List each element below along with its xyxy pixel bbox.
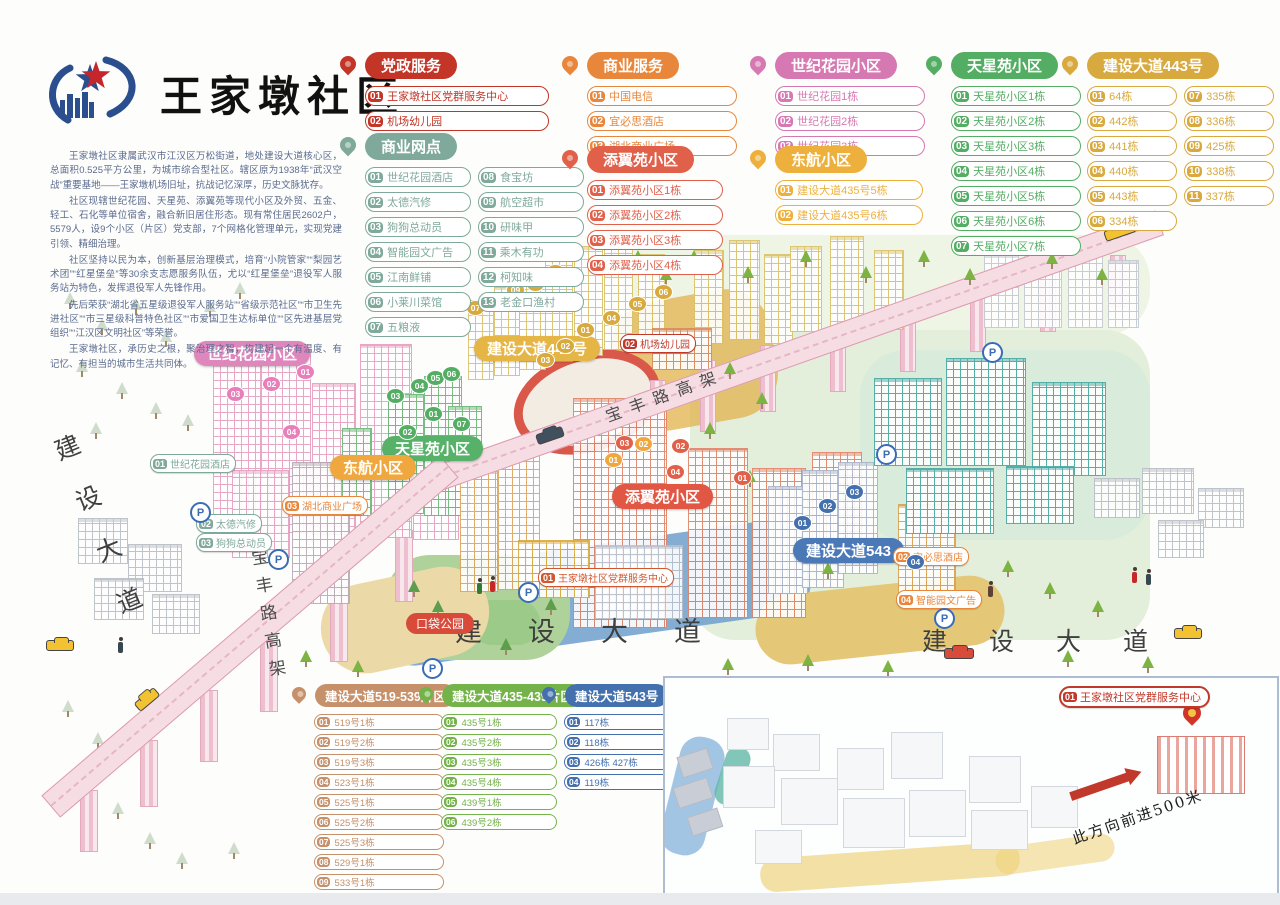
badge-number: 01 [609, 455, 618, 465]
item-number: 05 [1090, 191, 1105, 202]
item-number: 07 [954, 241, 969, 252]
building [460, 470, 498, 592]
poi-number: 03 [285, 501, 299, 511]
item-number: 04 [317, 777, 330, 787]
poi-label: 世纪花园酒店 [170, 456, 230, 471]
district-ribbon: 东航小区 [330, 455, 416, 480]
item-label: 天星苑小区2栋 [973, 113, 1045, 129]
badge-number: 02 [267, 379, 276, 389]
legend-item: 02太德汽修 [365, 192, 471, 212]
badge-number: 06 [447, 369, 456, 379]
badge-number: 01 [429, 409, 438, 419]
parking-letter: P [941, 613, 948, 625]
tree-icon [90, 422, 102, 439]
poi-tag: 03狗狗总动员 [196, 533, 272, 552]
map-pin-icon [747, 146, 770, 169]
building [1032, 382, 1106, 476]
item-number: 09 [1187, 141, 1202, 152]
building-number-badge: 02 [398, 424, 417, 440]
item-label: 442栋 [1109, 113, 1138, 129]
item-number: 06 [368, 297, 383, 308]
person-figure [988, 586, 993, 597]
item-number: 01 [567, 717, 580, 727]
item-label: 533号1栋 [334, 875, 374, 889]
ribbon-label: 添翼苑小区 [625, 489, 700, 506]
intro-paragraph: 王家墩社区隶属武汉市江汉区万松街道，地处建设大道核心区，总面积0.525平方公里… [50, 150, 342, 193]
poi-label: 湖北商业广场 [302, 498, 362, 513]
item-label: 64栋 [1109, 88, 1132, 104]
tree-icon [352, 660, 364, 677]
item-label: 523号1栋 [334, 775, 374, 789]
building [906, 468, 994, 534]
legend-panel-shijihuayuan: 世纪花园小区 01世纪花园1栋02世纪花园2栋03世纪花园3栋 [750, 52, 925, 156]
item-label: 519号1栋 [334, 715, 374, 729]
poi-tag: 03湖北商业广场 [282, 496, 368, 515]
legend-item: 04440栋 [1087, 161, 1177, 181]
legend-item: 08529号1栋 [314, 854, 444, 870]
map-pin-icon [337, 133, 360, 156]
badge-number: 03 [620, 438, 629, 448]
poi-number: 01 [153, 459, 167, 469]
tree-icon [1096, 268, 1108, 285]
tree-icon [300, 650, 312, 667]
item-label: 乘木有功 [500, 244, 544, 260]
tree-icon [112, 802, 124, 819]
poi-label: 太德汽修 [216, 516, 256, 531]
tree-icon [800, 250, 812, 267]
building-number-badge: 01 [424, 406, 443, 422]
tree-icon [150, 402, 162, 419]
item-label: 525号3栋 [334, 835, 374, 849]
building [729, 240, 760, 340]
legend-item: 01添翼苑小区1栋 [587, 180, 723, 200]
legend-items: 01世纪花园酒店02太德汽修03狗狗总动员04智能园文广告05江南鲜铺06小莱川… [365, 167, 581, 359]
item-label: 老金口渔村 [500, 294, 555, 310]
legend-item: 02建设大道435号6栋 [775, 205, 923, 225]
item-label: 525号2栋 [334, 815, 374, 829]
poi-tag: 01王家墩社区党群服务中心 [538, 568, 674, 587]
legend-title: 建设大道543号 [565, 684, 668, 707]
car-icon [1174, 628, 1202, 639]
parking-letter: P [429, 663, 436, 675]
item-label: 天星苑小区6栋 [973, 213, 1045, 229]
building-number-badge: 06 [442, 366, 461, 382]
person-figure [490, 581, 495, 592]
legend-title: 党政服务 [365, 52, 457, 79]
item-label: 440栋 [1109, 163, 1138, 179]
parking-icon: P [422, 658, 443, 679]
item-number: 02 [954, 116, 969, 127]
item-number: 11 [481, 247, 496, 258]
item-number: 04 [567, 777, 580, 787]
poi-label: 智能园文广告 [916, 592, 976, 607]
tree-icon [882, 660, 894, 677]
item-number: 04 [590, 260, 605, 271]
inset-block [909, 790, 966, 837]
tree-icon [144, 832, 156, 849]
item-number: 06 [444, 817, 457, 827]
item-number: 02 [567, 737, 580, 747]
item-label: 119栋 [584, 775, 609, 789]
item-label: 小莱川菜馆 [387, 294, 442, 310]
parking-letter: P [989, 347, 996, 359]
building-number-badge: 01 [733, 470, 752, 486]
item-number: 01 [954, 91, 969, 102]
legend-panel-party-services: 党政服务 01王家墩社区党群服务中心02机场幼儿园 [340, 52, 549, 131]
badge-number: 04 [911, 557, 920, 567]
person-figure [477, 583, 482, 594]
item-label: 425栋 [1206, 138, 1235, 154]
badge-number: 05 [431, 373, 440, 383]
poi-label: 王家墩社区党群服务中心 [558, 570, 668, 585]
inset-block [755, 830, 802, 864]
item-label: 435号1栋 [461, 715, 501, 729]
item-label: 太德汽修 [387, 194, 431, 210]
poi-tag: 01世纪花园酒店 [150, 454, 236, 473]
legend-item: 06439号2栋 [441, 814, 557, 830]
service-center-building [1157, 736, 1245, 794]
intro-paragraph: 社区现辖世纪花园、天星苑、添翼苑等现代小区及外贸、五金、轻工、石化等单位宿舍，融… [50, 195, 342, 252]
item-label: 建设大道435号5栋 [797, 182, 887, 198]
item-number: 06 [317, 817, 330, 827]
legend-items: 01王家墩社区党群服务中心02机场幼儿园 [365, 86, 549, 131]
item-label: 添翼苑小区4栋 [609, 257, 681, 273]
item-number: 04 [1090, 166, 1105, 177]
item-label: 435号3栋 [461, 755, 501, 769]
building-number-badge: 04 [602, 310, 621, 326]
legend-item: 07335栋 [1184, 86, 1274, 106]
item-label: 添翼苑小区3栋 [609, 232, 681, 248]
item-number: 01 [590, 185, 605, 196]
item-label: 王家墩社区党群服务中心 [387, 88, 508, 104]
parking-letter: P [525, 587, 532, 599]
map-pin-icon [289, 684, 309, 704]
building [1142, 468, 1194, 514]
item-number: 05 [444, 797, 457, 807]
badge-number: 02 [676, 441, 685, 451]
item-label: 五粮液 [387, 319, 420, 335]
legend-title: 添翼苑小区 [587, 146, 694, 173]
item-label: 天星苑小区1栋 [973, 88, 1045, 104]
parking-icon: P [190, 502, 211, 523]
item-label: 天星苑小区3栋 [973, 138, 1045, 154]
building [1094, 478, 1140, 518]
item-label: 研味甲 [500, 219, 533, 235]
building-number-badge: 03 [845, 484, 864, 500]
legend-item: 01中国电信 [587, 86, 737, 106]
legend-item: 01王家墩社区党群服务中心 [365, 86, 549, 106]
item-number: 08 [1187, 116, 1202, 127]
item-label: 525号1栋 [334, 795, 374, 809]
tree-icon [964, 268, 976, 285]
legend-panel-commercial-outlets: 商业网点 01世纪花园酒店02太德汽修03狗狗总动员04智能园文广告05江南鲜铺… [340, 133, 581, 359]
viaduct-pillar [80, 790, 98, 852]
badge-number: 04 [671, 467, 680, 477]
bottom-border [0, 893, 1280, 905]
legend-items: 01添翼苑小区1栋02添翼苑小区2栋03添翼苑小区3栋04添翼苑小区4栋 [587, 180, 723, 275]
building-number-badge: 03 [226, 386, 245, 402]
tree-icon [756, 392, 768, 409]
building [1108, 260, 1139, 328]
legend-title: 建设大道443号 [1087, 52, 1219, 79]
legend-item: 04添翼苑小区4栋 [587, 255, 723, 275]
tree-icon [1092, 600, 1104, 617]
item-label: 439号2栋 [461, 815, 501, 829]
item-label: 宜必思酒店 [609, 113, 664, 129]
map-pin-icon [337, 52, 360, 75]
item-number: 08 [317, 857, 330, 867]
poi-tag: 02宜必思酒店 [893, 547, 969, 566]
tree-icon [182, 414, 194, 431]
building-number-badge: 01 [793, 515, 812, 531]
parking-letter: P [197, 507, 204, 519]
service-center-tag: 01 王家墩社区党群服务中心 [1059, 686, 1210, 708]
legend-panel-commercial-services: 商业服务 01中国电信02宜必思酒店03湖北商业广场 [562, 52, 737, 156]
item-label: 435号2栋 [461, 735, 501, 749]
item-number: 03 [567, 757, 580, 767]
intro-text: 王家墩社区隶属武汉市江汉区万松街道，地处建设大道核心区，总面积0.525平方公里… [50, 150, 342, 374]
item-number: 06 [954, 216, 969, 227]
item-label: 添翼苑小区1栋 [609, 182, 681, 198]
badge-number: 06 [659, 287, 668, 297]
poi-number: 03 [199, 538, 213, 548]
item-label: 世纪花园2栋 [797, 113, 858, 129]
legend-title: 商业网点 [365, 133, 457, 160]
map-pin-icon [923, 52, 946, 75]
badge-number: 02 [823, 501, 832, 511]
tree-icon [62, 700, 74, 717]
item-label: 天星苑小区4栋 [973, 163, 1045, 179]
item-label: 117栋 [584, 715, 609, 729]
item-number: 09 [317, 877, 330, 887]
item-label: 狗狗总动员 [387, 219, 442, 235]
tree-icon [1142, 656, 1154, 673]
item-label: 335栋 [1206, 88, 1235, 104]
item-number: 12 [481, 272, 496, 283]
building [1198, 488, 1244, 528]
legend-item: 02机场幼儿园 [365, 111, 549, 131]
building-number-badge: 07 [452, 416, 471, 432]
district-ribbon: 建设大道543 [793, 538, 904, 563]
map-pin-icon [539, 684, 559, 704]
item-label: 338栋 [1206, 163, 1235, 179]
item-number: 01 [778, 91, 793, 102]
badge-number: 04 [287, 427, 296, 437]
legend-item: 07五粮液 [365, 317, 471, 337]
item-label: 江南鲜铺 [387, 269, 431, 285]
inset-block [891, 732, 943, 779]
poi-number: 04 [899, 595, 913, 605]
legend-item: 05江南鲜铺 [365, 267, 471, 287]
item-label: 航空超市 [500, 194, 544, 210]
tree-icon [1002, 560, 1014, 577]
map-pin-icon [416, 684, 436, 704]
parking-icon: P [934, 608, 955, 629]
legend-item: 02435号2栋 [441, 734, 557, 750]
badge-number: 01 [581, 325, 590, 335]
badge-number: 02 [639, 439, 648, 449]
poi-tag: 02机场幼儿园 [620, 334, 696, 353]
item-number: 13 [481, 297, 496, 308]
item-label: 中国电信 [609, 88, 653, 104]
legend-title: 天星苑小区 [951, 52, 1058, 79]
item-number: 07 [1187, 91, 1202, 102]
legend-item: 03添翼苑小区3栋 [587, 230, 723, 250]
building-number-badge: 02 [818, 498, 837, 514]
tree-icon [176, 852, 188, 869]
legend-item: 02世纪花园2栋 [775, 111, 925, 131]
inset-block [969, 756, 1021, 803]
item-number: 05 [368, 272, 383, 283]
item-label: 添翼苑小区2栋 [609, 207, 681, 223]
tree-icon [802, 654, 814, 671]
person-figure [1146, 574, 1151, 585]
item-number: 03 [317, 757, 330, 767]
ribbon-label: 建设大道543 [806, 543, 891, 560]
legend-item: 02442栋 [1087, 111, 1177, 131]
legend-item: 03狗狗总动员 [365, 217, 471, 237]
item-number: 05 [317, 797, 330, 807]
building [152, 594, 200, 634]
legend-item: 03426栋 427栋 [564, 754, 670, 770]
item-number: 02 [590, 210, 605, 221]
item-number: 04 [368, 247, 383, 258]
legend-item: 02宜必思酒店 [587, 111, 737, 131]
item-label: 天星苑小区5栋 [973, 188, 1045, 204]
intro-paragraph: 王家墩社区，承历史之根，聚治理之智，构建起一个有温度、有记忆、有担当的城市生活共… [50, 343, 342, 372]
building [1158, 520, 1204, 558]
community-logo-icon [38, 48, 150, 138]
item-number: 03 [954, 141, 969, 152]
poi-number: 01 [1063, 692, 1077, 702]
tree-icon [408, 580, 420, 597]
inset-block [837, 748, 884, 790]
item-number: 01 [590, 91, 605, 102]
parking-letter: P [275, 554, 282, 566]
item-number: 02 [368, 116, 383, 127]
item-label: 336栋 [1206, 113, 1235, 129]
road-label-jianshe-dadao: 建设大道 [455, 610, 747, 649]
item-label: 智能园文广告 [387, 244, 453, 260]
item-number: 02 [1090, 116, 1105, 127]
item-label: 柯知味 [500, 269, 533, 285]
viaduct-pillar [200, 690, 218, 762]
item-label: 529号1栋 [334, 855, 374, 869]
bus-icon [944, 648, 974, 659]
parking-icon: P [876, 444, 897, 465]
map-pin-icon [559, 52, 582, 75]
item-label: 世纪花园酒店 [387, 169, 453, 185]
legend-item: 13老金口渔村 [478, 292, 584, 312]
legend-item: 01世纪花园酒店 [365, 167, 471, 187]
legend-item: 11337栋 [1184, 186, 1274, 206]
building-number-badge: 04 [906, 554, 925, 570]
inset-block [727, 718, 769, 750]
legend-title: 东航小区 [775, 146, 867, 173]
item-label: 世纪花园1栋 [797, 88, 858, 104]
item-number: 03 [368, 222, 383, 233]
legend-items: 0164栋02442栋03441栋04440栋05443栋06334栋07335… [1087, 86, 1271, 252]
legend-items: 01117栋02118栋03426栋 427栋04119栋 [564, 714, 670, 790]
badge-number: 01 [798, 518, 807, 528]
legend-panel-jianshedadao-543: 建设大道543号 01117栋02118栋03426栋 427栋04119栋 [542, 684, 670, 790]
tree-icon [116, 382, 128, 399]
legend-item: 01建设大道435号5栋 [775, 180, 923, 200]
legend-item: 04119栋 [564, 774, 670, 790]
legend-item: 07525号3栋 [314, 834, 444, 850]
building-number-badge: 03 [386, 388, 405, 404]
item-number: 01 [1090, 91, 1105, 102]
person-figure [1132, 572, 1137, 583]
legend-item: 05443栋 [1087, 186, 1177, 206]
item-number: 05 [954, 191, 969, 202]
legend-panel-donghang: 东航小区 01建设大道435号5栋02建设大道435号6栋 [750, 146, 923, 225]
item-number: 01 [368, 172, 383, 183]
item-number: 08 [481, 172, 496, 183]
building [946, 358, 1026, 466]
item-label: 334栋 [1109, 213, 1138, 229]
parking-letter: P [883, 449, 890, 461]
legend-items: 01建设大道435号5栋02建设大道435号6栋 [775, 180, 923, 225]
item-label: 519号3栋 [334, 755, 374, 769]
map-pin-icon [1059, 52, 1082, 75]
item-number: 01 [444, 717, 457, 727]
item-label: 机场幼儿园 [387, 113, 442, 129]
item-number: 11 [1187, 191, 1202, 202]
item-label: 337栋 [1206, 188, 1235, 204]
building-number-badge: 02 [671, 438, 690, 454]
legend-item: 10338栋 [1184, 161, 1274, 181]
tree-icon [724, 362, 736, 379]
item-number: 09 [481, 197, 496, 208]
item-label: 食宝坊 [500, 169, 533, 185]
poi-label: 狗狗总动员 [216, 535, 266, 550]
item-label: 441栋 [1109, 138, 1138, 154]
legend-item: 0164栋 [1087, 86, 1177, 106]
building-number-badge: 01 [604, 452, 623, 468]
community-map-poster: 王家墩社区 王家墩社区隶属武汉市江汉区万松街道，地处建设大道核心区，总面积0.5… [0, 0, 1280, 905]
legend-panel-jianshedadao-443: 建设大道443号 0164栋02442栋03441栋04440栋05443栋06… [1062, 52, 1271, 252]
legend-item: 04智能园文广告 [365, 242, 471, 262]
tree-icon [860, 266, 872, 283]
tree-icon [742, 266, 754, 283]
badge-number: 04 [607, 313, 616, 323]
poi-label: 王家墩社区党群服务中心 [1080, 689, 1201, 705]
item-number: 07 [368, 322, 383, 333]
map-pin-icon [747, 52, 770, 75]
inset-locator-map: 01 王家墩社区党群服务中心 此方向前进500米 [663, 676, 1279, 904]
item-number: 06 [1090, 216, 1105, 227]
person-figure [118, 642, 123, 653]
park-label: 口袋公园 [406, 613, 474, 634]
tree-icon [228, 842, 240, 859]
building-number-badge: 02 [262, 376, 281, 392]
building-number-badge: 04 [282, 424, 301, 440]
tree-icon [1044, 582, 1056, 599]
item-number: 02 [444, 737, 457, 747]
intro-paragraph: 先后荣获“湖北省五星级退役军人服务站”“省级示范社区”“市卫生先进社区”“市三星… [50, 299, 342, 342]
badge-number: 04 [415, 381, 424, 391]
intro-paragraph: 社区坚持以民为本，创新基层治理模式，培育“小院管家”“梨园艺术团”“红星堡垒”等… [50, 254, 342, 297]
legend-item: 05439号1栋 [441, 794, 557, 810]
item-number: 01 [778, 185, 793, 196]
item-label: 建设大道435号6栋 [797, 207, 887, 223]
parking-icon: P [518, 582, 539, 603]
building-number-badge: 03 [615, 435, 634, 451]
legend-item: 01世纪花园1栋 [775, 86, 925, 106]
parking-icon: P [982, 342, 1003, 363]
legend-title: 世纪花园小区 [775, 52, 897, 79]
